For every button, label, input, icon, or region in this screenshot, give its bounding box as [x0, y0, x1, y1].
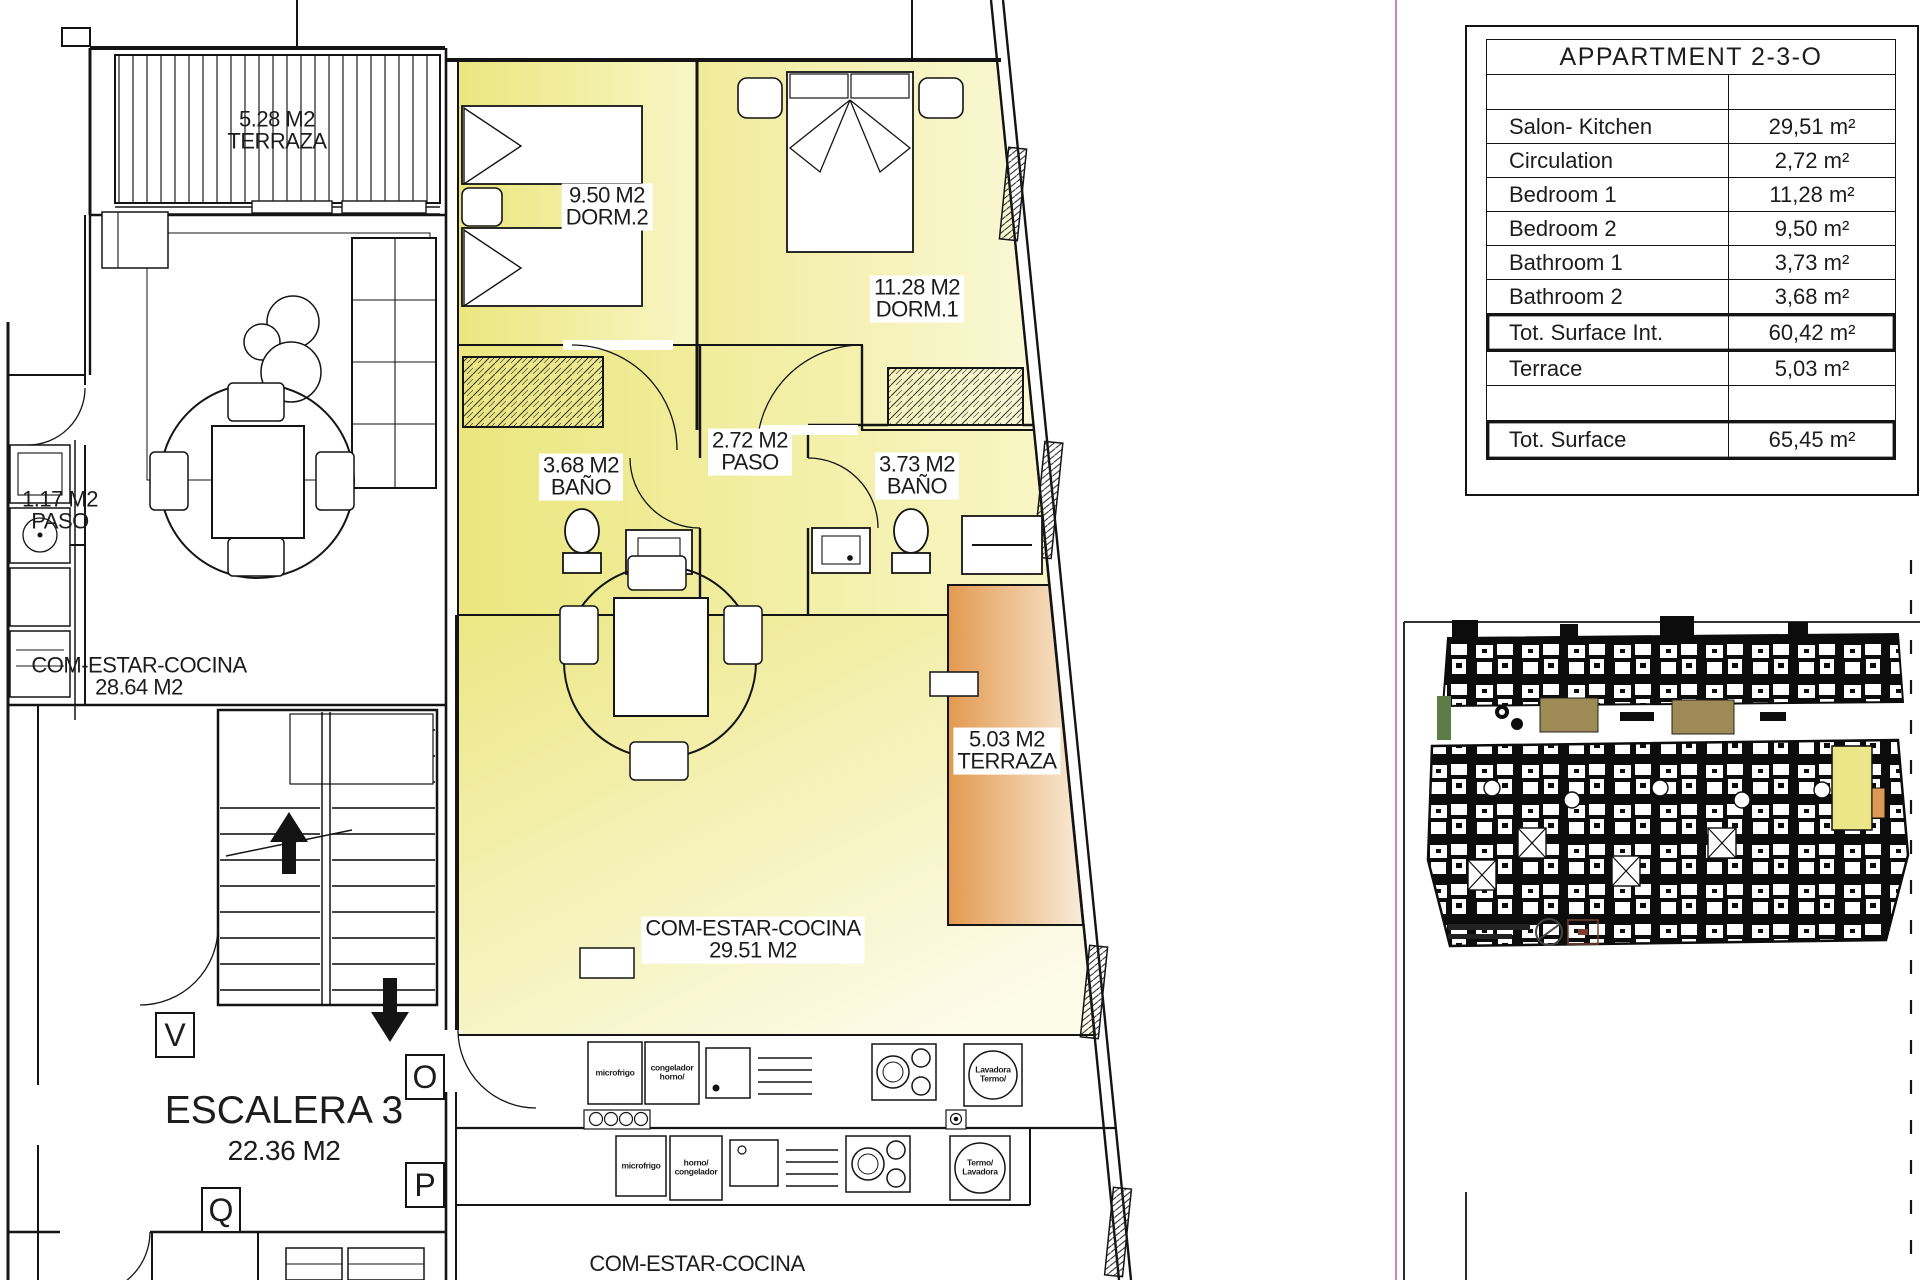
marker-v: V [155, 1012, 195, 1058]
terrace-unit [930, 672, 978, 696]
thumbnail-highlighted-unit [1832, 746, 1872, 830]
marker-q: Q [201, 1187, 241, 1233]
table-row-bathroom2: Bathroom 23,68 m² [1487, 280, 1895, 314]
wardrobe-bedroom2 [463, 357, 603, 427]
appliance-label-oven-bottom: horno/ congelador [672, 1159, 720, 1178]
room-label-living-left: COM-ESTAR-COCINA28.64 M2 [27, 654, 250, 701]
room-label-bedroom2: 9.50 M2DORM.2 [562, 184, 653, 231]
room-label-terrace-top: 5.28 M2TERRAZA [223, 108, 330, 155]
appliance-label-washer-top: Lavadora Termo/ [973, 1066, 1013, 1085]
room-label-paso: 2.72 M2PASO [708, 429, 792, 476]
table-row-salon-kitchen: Salon- Kitchen29,51 m² [1487, 110, 1895, 144]
building-overview-thumbnail [1428, 616, 1908, 946]
areas-table-frame: APPARTMENT 2-3-O Salon- Kitchen29,51 m² … [1465, 25, 1919, 496]
wardrobe-bedroom1 [888, 368, 1023, 425]
marker-p: P [405, 1162, 445, 1208]
table-row-total-surface: Tot. Surface65,45 m² [1487, 421, 1895, 459]
room-label-living-main: COM-ESTAR-COCINA29.51 M2 [641, 917, 864, 964]
room-label-terrace-right: 5.03 M2TERRAZA [953, 728, 1060, 775]
table-row-bedroom2: Bedroom 29,50 m² [1487, 212, 1895, 246]
table-row-terrace: Terrace5,03 m² [1487, 352, 1895, 386]
table-row-total-interior: Tot. Surface Int.60,42 m² [1487, 314, 1895, 352]
room-label-stairs: ESCALERA 322.36 M2 [161, 1090, 407, 1166]
thumbnail-highlighted-terrace [1872, 788, 1885, 818]
areas-table-title: APPARTMENT 2-3-O [1487, 40, 1895, 75]
table-row-circulation: Circulation2,72 m² [1487, 144, 1895, 178]
table-row-bathroom1: Bathroom 13,73 m² [1487, 246, 1895, 280]
neighbour-dining-set [150, 383, 354, 578]
table-row-bedroom1: Bedroom 111,28 m² [1487, 178, 1895, 212]
appliance-label-fridge-bottom: microfrigo [617, 1161, 665, 1170]
room-label-paso-small: 1.17 M2PASO [18, 488, 102, 535]
kitchen-main [456, 1035, 1115, 1129]
room-label-bathroom1: 3.73 M2BAÑO [875, 453, 959, 500]
marker-o: O [405, 1054, 445, 1100]
appliance-label-fridge-top: microfrigo [591, 1068, 639, 1077]
plan-sheet: 5.28 M2TERRAZA 9.50 M2DORM.2 11.28 M2DOR… [0, 0, 1920, 1280]
areas-table: APPARTMENT 2-3-O Salon- Kitchen29,51 m² … [1486, 39, 1896, 460]
room-label-bathroom2: 3.68 M2BAÑO [539, 454, 623, 501]
kitchen-lower [456, 1128, 1030, 1205]
appliance-label-oven-top: congelador horno/ [648, 1064, 696, 1083]
table-row [1487, 75, 1895, 110]
appliance-label-washer-bottom: Termo/ Lavadora [960, 1159, 1000, 1178]
room-label-living-bottom: COM-ESTAR-COCINA [585, 1252, 808, 1276]
room-label-bedroom1: 11.28 M2DORM.1 [870, 276, 964, 323]
staircase [218, 710, 437, 1042]
table-row [1487, 386, 1895, 421]
